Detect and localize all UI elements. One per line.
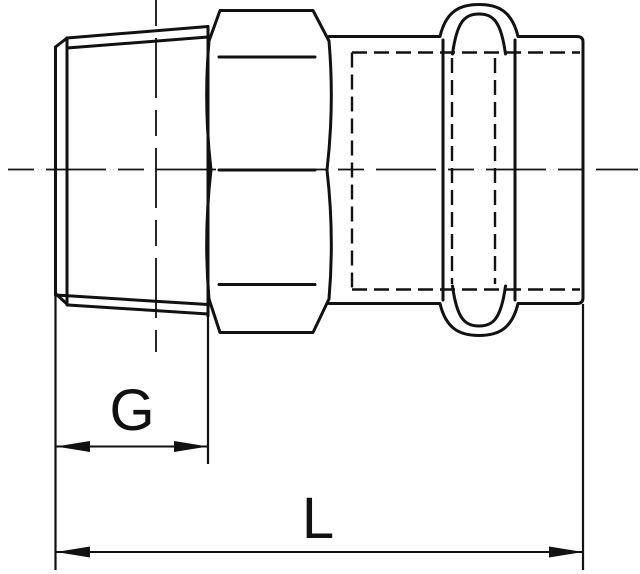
- technical-drawing-canvas: G L: [0, 0, 640, 574]
- g-arrow-right: [174, 441, 208, 452]
- thread-root-top: [67, 37, 208, 48]
- g-arrow-left: [56, 441, 90, 452]
- thread-root-bottom: [56, 295, 209, 305]
- l-dimension-label: L: [302, 486, 334, 551]
- l-arrow-left: [56, 547, 90, 558]
- hidden-bore-lines: [352, 53, 580, 290]
- dimension-g: G: [56, 294, 209, 570]
- l-arrow-right: [549, 547, 583, 558]
- bead-inner-wall-top: [453, 14, 506, 54]
- thread-crest-bottom: [68, 305, 208, 314]
- fitting-diagram: G L: [0, 0, 640, 574]
- thread-crest-top: [67, 27, 208, 39]
- male-thread-end: [56, 27, 209, 317]
- hex-nut: [207, 11, 332, 333]
- thread-chamfer-top: [56, 38, 68, 47]
- bead-inner-wall-bottom: [453, 286, 506, 326]
- g-dimension-label: G: [109, 378, 154, 443]
